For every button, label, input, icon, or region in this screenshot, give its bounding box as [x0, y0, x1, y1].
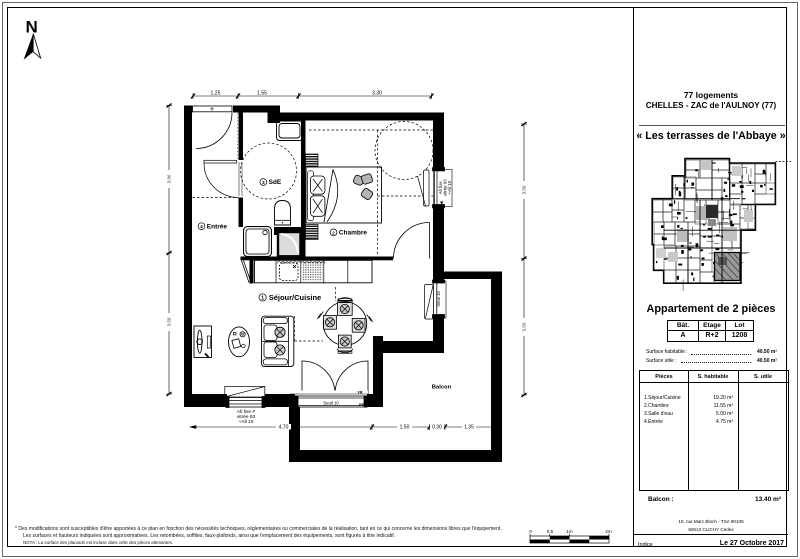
svg-text:3.50: 3.50: [167, 317, 172, 326]
svg-text:3.50: 3.50: [522, 185, 527, 194]
svg-text:Entrée: Entrée: [207, 223, 228, 230]
svg-text:Balcon: Balcon: [432, 384, 452, 390]
svg-text:N: N: [26, 18, 38, 37]
svg-text:0.30: 0.30: [432, 425, 442, 431]
svg-text:1: 1: [261, 296, 264, 302]
svg-text:3.50: 3.50: [522, 322, 527, 331]
svg-text:2m: 2m: [605, 529, 612, 534]
svg-text:4: 4: [200, 224, 203, 230]
svg-text:1.55: 1.55: [257, 91, 267, 97]
svg-text:1.25: 1.25: [210, 91, 220, 97]
svg-text:1.35: 1.35: [464, 425, 474, 431]
svg-text:3: 3: [262, 180, 265, 186]
svg-text:PF: PF: [359, 403, 365, 407]
svg-text:Seuil 10: Seuil 10: [323, 401, 339, 406]
svg-text:Seuil 10: Seuil 10: [436, 291, 441, 307]
svg-text:VR: VR: [357, 390, 363, 394]
svg-text:+All 10: +All 10: [239, 419, 254, 425]
svg-text:1.50: 1.50: [400, 425, 410, 431]
svg-text:1m: 1m: [566, 529, 573, 534]
svg-text:+All 10: +All 10: [447, 180, 452, 194]
svg-text:SdE: SdE: [269, 179, 282, 186]
svg-text:Chambre: Chambre: [339, 230, 368, 237]
svg-text:2: 2: [332, 230, 335, 236]
svg-text:Séjour/Cuisine: Séjour/Cuisine: [269, 293, 322, 302]
svg-text:4.70: 4.70: [279, 425, 289, 431]
svg-text:3.30: 3.30: [372, 91, 382, 97]
svg-text:0: 0: [529, 529, 532, 534]
svg-text:3.80: 3.80: [167, 174, 172, 183]
svg-text:0.5: 0.5: [547, 529, 554, 534]
